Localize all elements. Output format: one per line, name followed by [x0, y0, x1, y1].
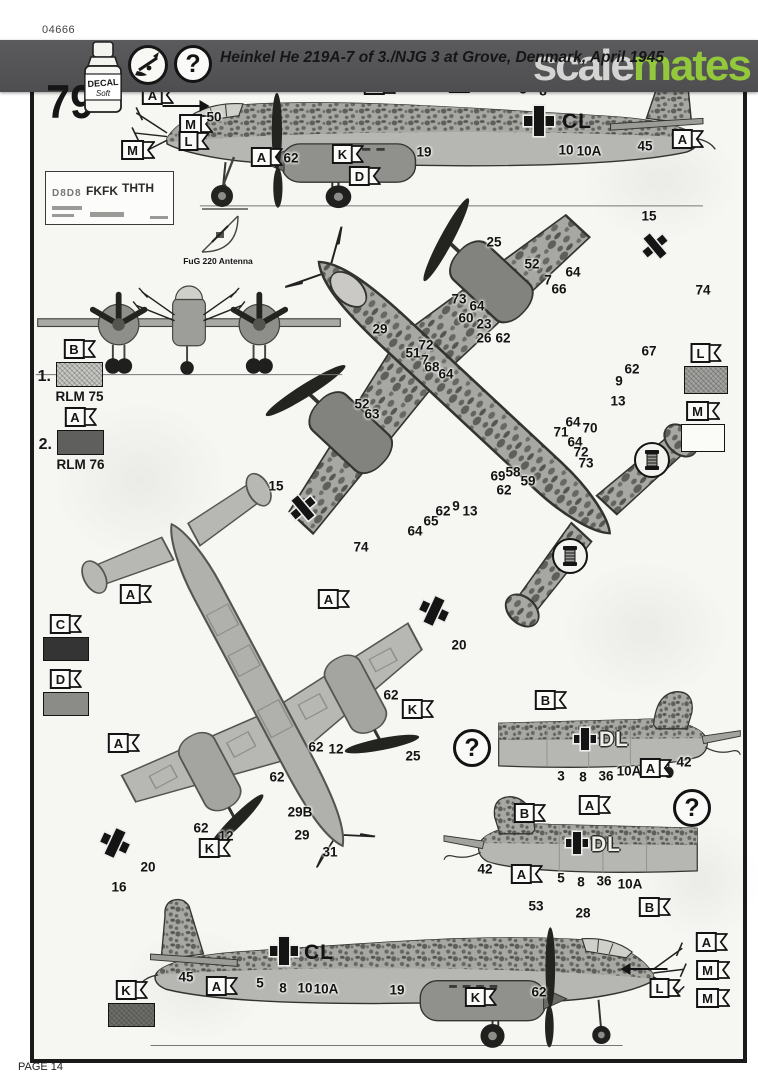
page-number-label: PAGE 14: [18, 1061, 63, 1073]
question-icon: ?: [174, 45, 212, 83]
decal-strip: [52, 206, 82, 210]
decal-strip: [52, 214, 74, 217]
decal-code: THTH: [122, 181, 154, 195]
decal-sheet: D8D8 FKFK THTH: [45, 171, 174, 225]
decal-soft-bottle-icon: DECAL Soft: [80, 40, 126, 125]
nose-wheel-detail: [200, 155, 250, 213]
side-view-starboard: [112, 893, 690, 1055]
decal-strip: [150, 216, 168, 219]
decal-code: D8D8: [52, 188, 82, 199]
decal-code: FKFK: [86, 184, 118, 198]
rear-fuselage-view-port: [437, 793, 699, 895]
front-view: [30, 270, 348, 382]
paint-scheme-icon: [127, 44, 169, 91]
page-title: Heinkel He 219A-7 of 3./NJG 3 at Grove, …: [220, 49, 740, 67]
fug-antenna-label: FuG 220 Antenna: [153, 256, 283, 266]
fug-220-antenna-icon: [198, 212, 244, 256]
kit-number: 04666: [42, 24, 75, 36]
decal-bottle-sublabel: Soft: [83, 89, 123, 98]
decal-strip: [90, 212, 124, 217]
rear-fuselage-view-starboard: [497, 688, 747, 790]
